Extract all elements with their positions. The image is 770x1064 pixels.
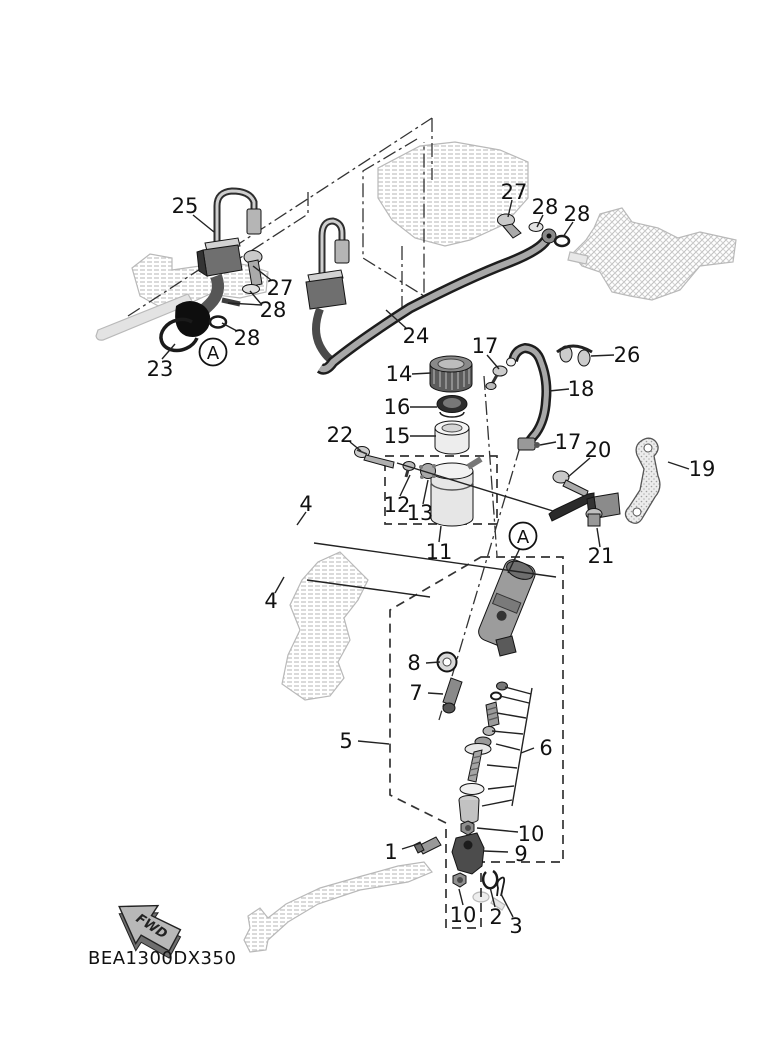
part-7-pushrod xyxy=(443,678,462,706)
part-12-grommet-stem xyxy=(406,470,408,477)
part-label-24: 24 xyxy=(403,324,430,348)
part-10-nut-top-hole xyxy=(465,825,471,831)
part-label-7: 7 xyxy=(409,681,422,705)
part-6-piston-shaft xyxy=(468,750,482,782)
part-label-28-right-1: 28 xyxy=(532,195,559,219)
part-label-18: 18 xyxy=(568,377,595,401)
part-13-damper-bump-1 xyxy=(419,465,423,469)
leader-26 xyxy=(591,355,614,356)
part-19-hole-top xyxy=(644,444,652,452)
part-joint-block-2 xyxy=(306,277,346,309)
part-9-clevis-hole xyxy=(464,841,473,850)
leader-18 xyxy=(549,389,569,391)
leader-7 xyxy=(428,693,443,694)
part-26-clamp-lobe-2 xyxy=(578,350,590,366)
leader-14 xyxy=(412,373,431,374)
part-label-8: 8 xyxy=(407,651,420,675)
part-24-banjo-hole xyxy=(547,234,552,239)
leader-5 xyxy=(358,741,389,744)
exploded-parts-diagram: 25 27 28 28 23 24 27 28 28 17 26 18 14 1… xyxy=(0,0,770,1064)
part-label-23: 23 xyxy=(147,357,174,381)
part-2-washer-ring xyxy=(483,871,497,888)
part-16-diaphragm-inner xyxy=(443,398,461,408)
ghost-footrest-bracket xyxy=(282,552,368,700)
part-label-20: 20 xyxy=(585,438,612,462)
part-10-nut-bottom-hole xyxy=(457,877,463,883)
part-17-grommet-foot xyxy=(486,383,496,390)
part-pipe-2-lower xyxy=(316,309,334,361)
ghost-parts-group xyxy=(96,142,736,952)
leader-6-spine xyxy=(512,688,532,806)
leader-6-c xyxy=(497,713,526,718)
part-label-15: 15 xyxy=(384,424,411,448)
part-17-clamp-screw xyxy=(534,442,540,448)
part-label-17-bottom: 17 xyxy=(555,430,582,454)
part-28-ring-left xyxy=(210,317,226,328)
part-18-hose-end xyxy=(507,358,516,366)
part-label-27-right: 27 xyxy=(501,180,528,204)
ghost-rear-caliper xyxy=(572,208,736,300)
part-11-tank-top xyxy=(431,463,473,479)
leader-6-d xyxy=(492,731,523,734)
part-6-cap xyxy=(497,682,508,690)
detail-marker-a-left: A xyxy=(207,343,220,364)
detail-markers-group: A A xyxy=(200,339,537,550)
part-label-25: 25 xyxy=(172,194,199,218)
part-label-27-left: 27 xyxy=(267,276,294,300)
part-9-clevis xyxy=(452,833,484,874)
part-pipe-2-fitting xyxy=(335,240,349,263)
leader-8 xyxy=(426,662,440,663)
part-15-float-inner xyxy=(442,424,462,432)
part-label-14: 14 xyxy=(386,362,413,386)
part-13-damper-bump-4 xyxy=(420,475,424,479)
part-11-tank-nipple xyxy=(468,459,481,467)
part-label-3: 3 xyxy=(509,914,522,938)
part-17-grommet-top xyxy=(493,366,507,376)
part-label-19: 19 xyxy=(689,457,716,481)
part-19-bracket xyxy=(626,438,660,523)
leader-9 xyxy=(484,851,508,852)
leader-6-g xyxy=(488,786,514,789)
part-label-6: 6 xyxy=(539,736,552,760)
part-17-clamp-bottom xyxy=(518,438,535,450)
part-mc-clevis-lug xyxy=(496,636,516,656)
part-28-washer-right xyxy=(529,223,543,232)
part-21-bolt-body xyxy=(588,514,600,526)
part-19-hole-bottom xyxy=(633,508,641,516)
part-6-ring xyxy=(491,693,501,700)
part-joint-block-left xyxy=(203,245,242,276)
part-label-5: 5 xyxy=(339,729,352,753)
ghost-brake-pedal xyxy=(244,862,432,952)
part-label-17-top: 17 xyxy=(472,334,499,358)
leader-19 xyxy=(668,462,689,469)
leader-6-b xyxy=(500,696,529,703)
part-6-washer xyxy=(460,784,484,795)
part-label-11: 11 xyxy=(426,540,453,564)
leader-6-h xyxy=(482,800,512,806)
part-label-22: 22 xyxy=(327,423,354,447)
part-label-9: 9 xyxy=(514,842,527,866)
part-3-cotter-pin xyxy=(497,878,504,896)
part-label-26: 26 xyxy=(614,343,641,367)
parts-diagram-page: 25 27 28 28 23 24 27 28 28 17 26 18 14 1… xyxy=(0,0,770,1064)
leader-6-f xyxy=(487,765,517,768)
part-14-cap-top-inner xyxy=(438,359,464,369)
part-label-1: 1 xyxy=(384,840,397,864)
leader-6-label xyxy=(521,748,534,753)
part-8-circlip-hole xyxy=(443,658,451,666)
part-28-ring-right xyxy=(555,236,569,246)
part-25-fitting xyxy=(247,209,261,234)
part-13-damper-bump-2 xyxy=(432,464,436,468)
drawing-code: BEA1300DX350 xyxy=(88,948,236,969)
leader-6-a xyxy=(505,687,531,694)
part-label-28-left-1: 28 xyxy=(260,298,287,322)
part-label-28-left-2: 28 xyxy=(234,326,261,350)
part-label-16: 16 xyxy=(384,395,411,419)
part-20-bolt-shaft xyxy=(563,480,588,497)
part-label-4-bottom: 4 xyxy=(264,589,277,613)
part-7-pushrod-tip xyxy=(443,703,455,713)
part-6-cup-body xyxy=(459,800,479,823)
part-label-28-right-2: 28 xyxy=(564,202,591,226)
detail-marker-a-right: A xyxy=(517,527,530,548)
leader-17-bottom xyxy=(540,442,556,445)
part-label-2: 2 xyxy=(489,905,502,929)
part-label-10-bottom: 10 xyxy=(450,903,477,927)
part-22-screw-shaft xyxy=(364,455,394,468)
leader-6-e xyxy=(496,744,520,750)
leader-10-top xyxy=(477,828,518,832)
part-27-bolt-shaft-right xyxy=(503,224,521,238)
part-label-13: 13 xyxy=(407,501,434,525)
part-label-21: 21 xyxy=(588,544,615,568)
part-label-4-top: 4 xyxy=(299,492,312,516)
